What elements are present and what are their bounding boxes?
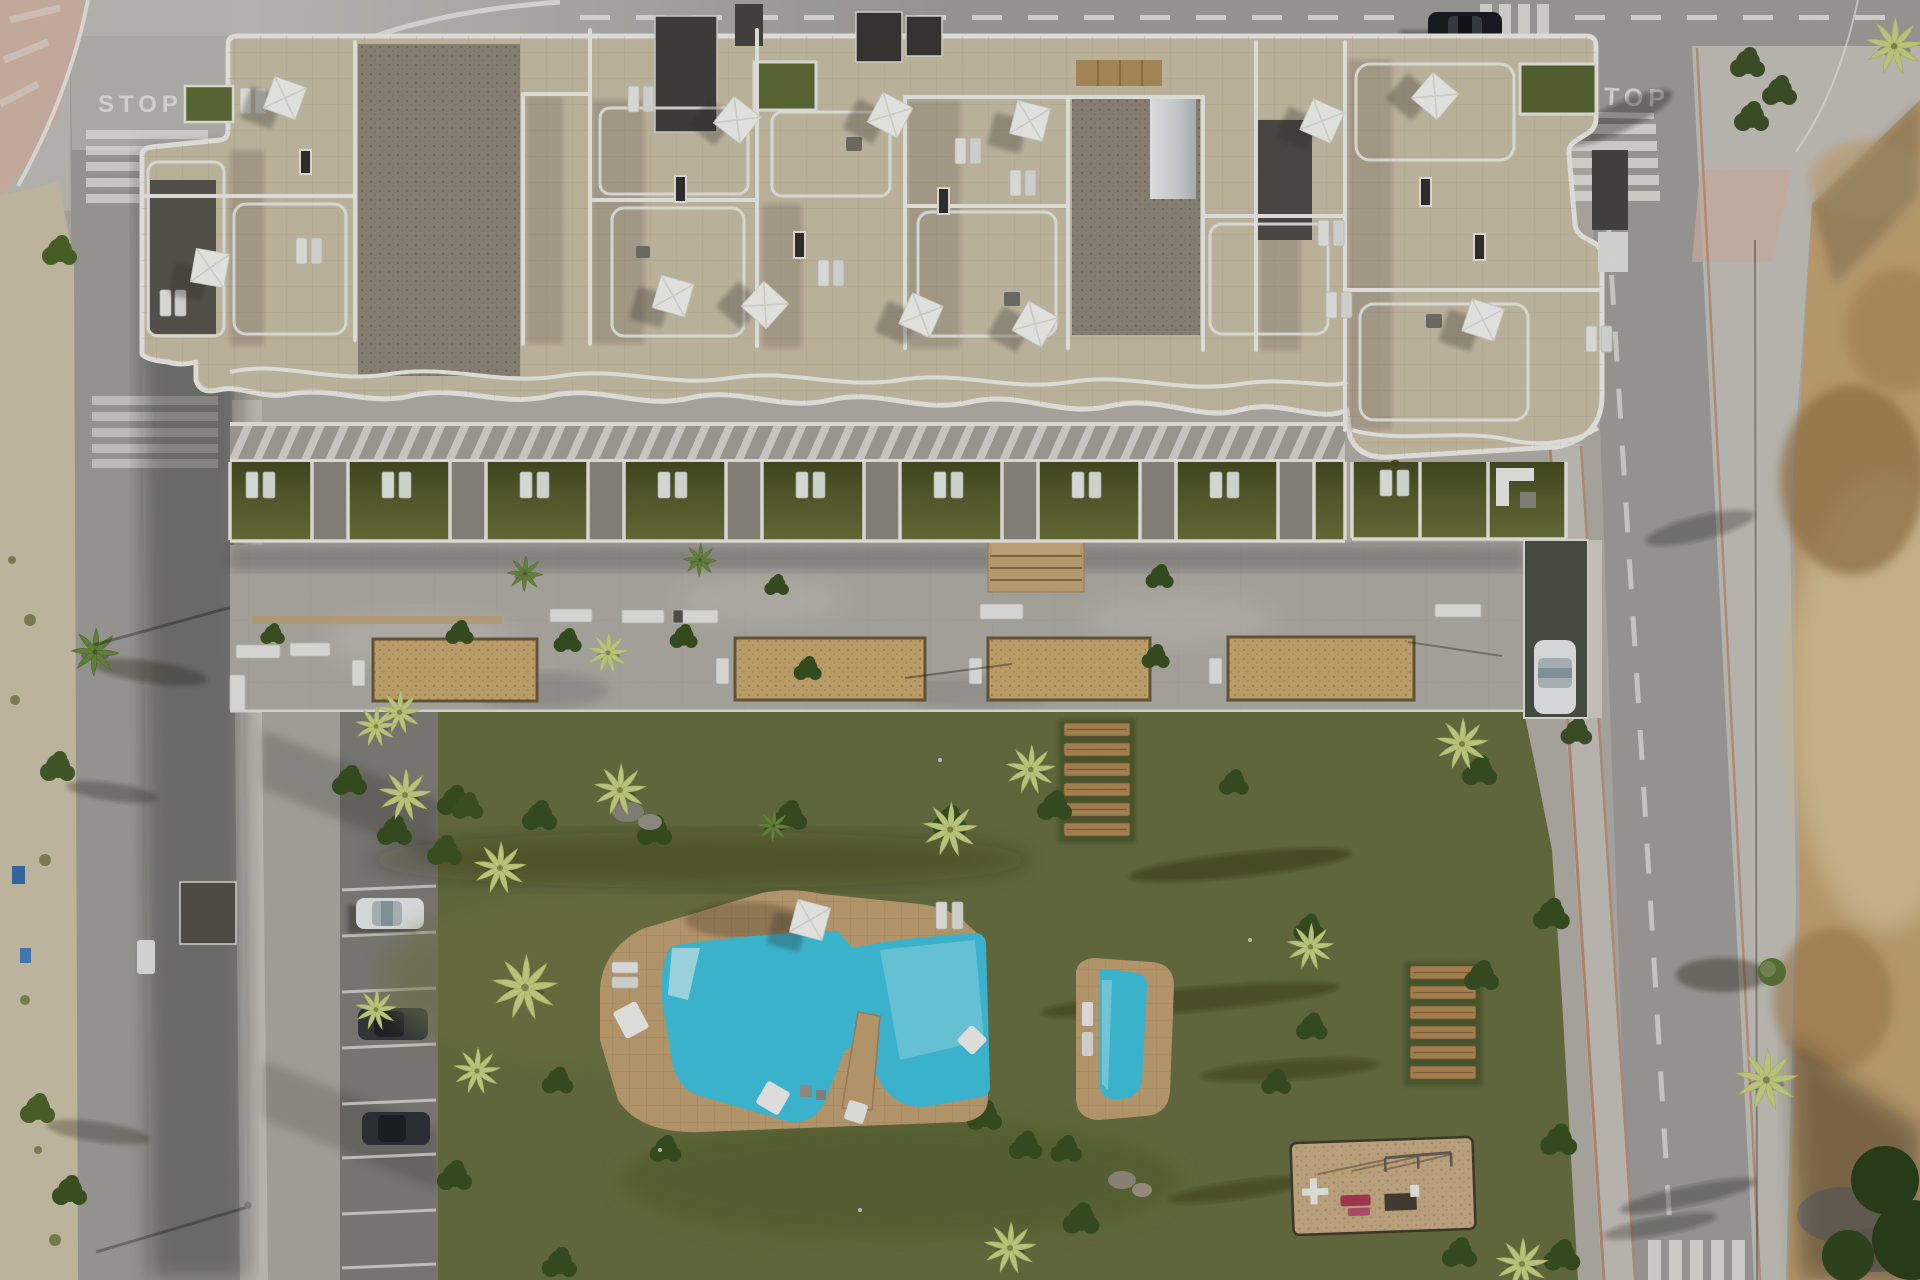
film-grain bbox=[0, 0, 1920, 1280]
aerial-render: STOP STOP bbox=[0, 0, 1920, 1280]
